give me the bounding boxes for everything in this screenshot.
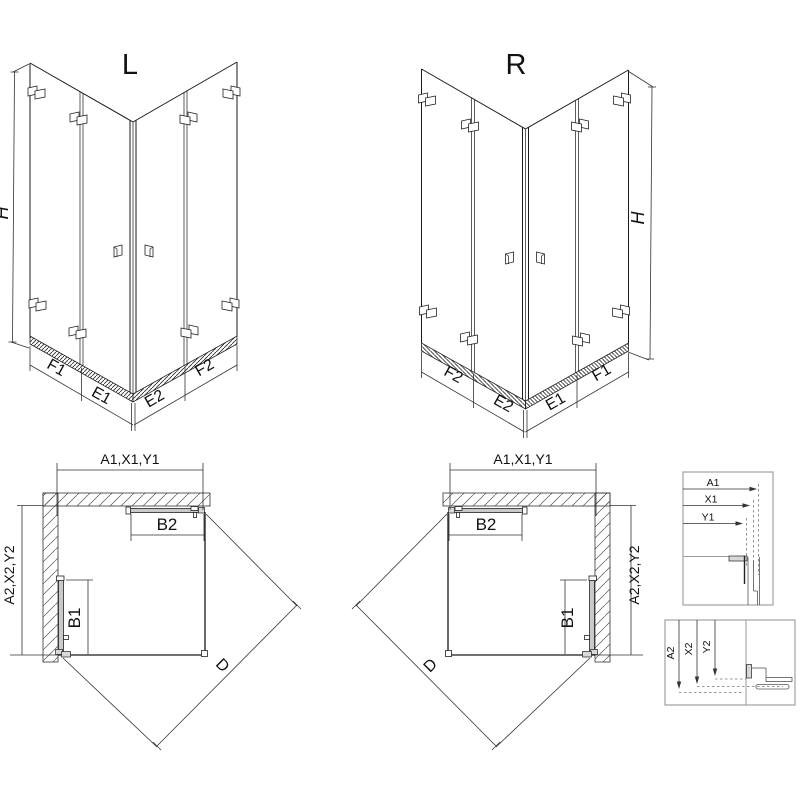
shower-enclosure-dimension-drawing: L H F1 E1 E2 F2 R H F2 E2 E1 F1 <box>0 0 800 800</box>
detail-width-dim-y1: Y1 <box>702 512 715 524</box>
plan-right-width-dim: A1,X1,Y1 <box>493 451 552 467</box>
iso-left-title: L <box>122 49 138 81</box>
detail-depth-dim-x2: X2 <box>683 642 695 655</box>
plan-view-left: A1,X1,Y1 A2,X2,Y2 B2 B1 D <box>1 451 301 750</box>
detail-width-dim-x1: X1 <box>705 494 718 506</box>
plan-left-door-side-dim: B1 <box>65 608 84 629</box>
detail-width-dim-a1: A1 <box>707 477 720 489</box>
technical-drawing-page: L H F1 E1 E2 F2 R H F2 E2 E1 F1 <box>0 0 800 800</box>
detail-panel-width: A1 X1 Y1 <box>683 472 773 605</box>
plan-left-side-wall <box>43 493 58 662</box>
iso-right-title: R <box>506 49 527 81</box>
iso-view-right: R H F2 E2 E1 F1 <box>419 49 657 438</box>
iso-left-height-label: H <box>0 206 12 220</box>
plan-left-top-wall <box>43 493 210 506</box>
plan-right-door-side-dim: B1 <box>558 608 577 629</box>
plan-right-side-wall <box>595 493 610 662</box>
plan-left-width-dim: A1,X1,Y1 <box>100 451 159 467</box>
plan-right-top-wall <box>443 493 610 506</box>
plan-view-right: A1,X1,Y1 A2,X2,Y2 B2 B1 D <box>352 451 643 750</box>
iso-left-height-dimension <box>9 64 30 348</box>
plan-right-depth-dim: A2,X2,Y2 <box>626 545 642 604</box>
plan-left-door-top-dim: B2 <box>157 515 178 534</box>
plan-right-door-top-dim: B2 <box>476 515 497 534</box>
detail-depth-dim-y2: Y2 <box>701 640 713 653</box>
detail-depth-dim-a2: A2 <box>665 646 677 659</box>
iso-view-left: L H F1 E1 E2 F2 <box>0 49 240 431</box>
iso-right-height-label: H <box>628 211 648 225</box>
detail-panel-depth: A2 X2 Y2 <box>665 620 795 705</box>
plan-left-depth-dim: A2,X2,Y2 <box>1 545 17 604</box>
